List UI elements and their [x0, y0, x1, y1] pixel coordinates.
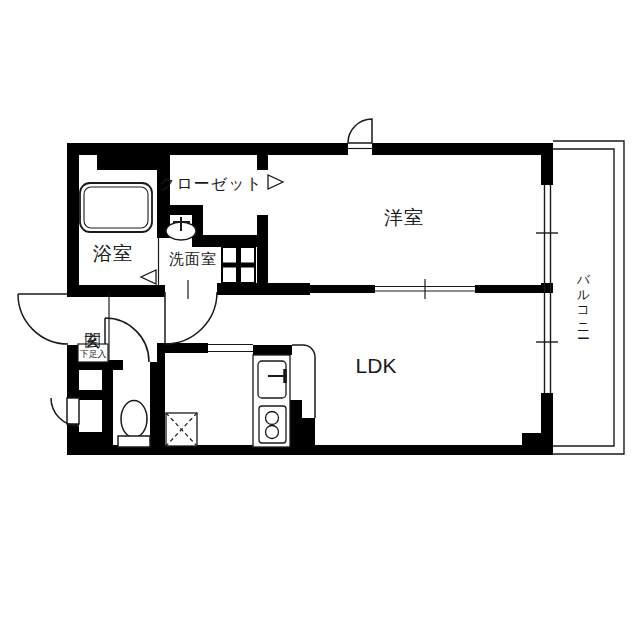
washbasin-icon: [166, 217, 196, 240]
wall-segment: [257, 247, 268, 285]
refrigerator-space-icon: [166, 413, 197, 446]
washroom-door-swing-icon: [165, 292, 217, 344]
wall-segment: [67, 143, 79, 295]
wall-segment: [67, 432, 113, 445]
shoe-cabinet-label: 下足入: [80, 348, 107, 361]
bathroom-label: 浴室: [93, 241, 133, 267]
entry-arrow-icon: [141, 270, 156, 284]
entrance-label: 玄関: [82, 318, 103, 322]
closet-label: クローゼット: [159, 174, 263, 195]
wall-segment: [541, 143, 553, 185]
wall-segment: [67, 143, 348, 155]
service-door-swing-icon: [51, 398, 79, 426]
entrance-door-swing-icon: [18, 294, 68, 344]
wall-segment: [310, 285, 375, 293]
wall-segment: [67, 285, 165, 297]
western-room-label: 洋室: [384, 205, 424, 231]
washing-machine-pan-icon: [222, 247, 255, 283]
bathtub-icon: [80, 183, 152, 232]
wall-segment: [157, 343, 165, 450]
washroom-label: 洗面室: [169, 250, 217, 269]
wall-segment: [475, 285, 541, 293]
toilet-door-swing-icon: [105, 318, 149, 362]
wall-segment: [97, 155, 157, 170]
stove-icon: [259, 406, 286, 443]
wall-segment: [541, 393, 553, 455]
entry-arrow-icon: [268, 175, 283, 189]
balcony-label: バルコニー: [574, 264, 592, 333]
wall-segment: [257, 155, 268, 170]
wall-segment: [257, 215, 268, 247]
wall-segment: [372, 143, 553, 155]
wall-segment: [253, 345, 292, 355]
floorplan-canvas: クローゼット 浴室 洗面室 洋室 LDK 玄関 下足入 バルコニー: [0, 0, 640, 640]
toilet-icon: [118, 401, 150, 448]
exterior-door-swing-icon: [348, 119, 372, 143]
kitchen-sink-icon: [258, 361, 287, 398]
ldk-label: LDK: [356, 354, 397, 378]
wall-segment: [302, 418, 315, 450]
wall-segment: [170, 205, 203, 215]
